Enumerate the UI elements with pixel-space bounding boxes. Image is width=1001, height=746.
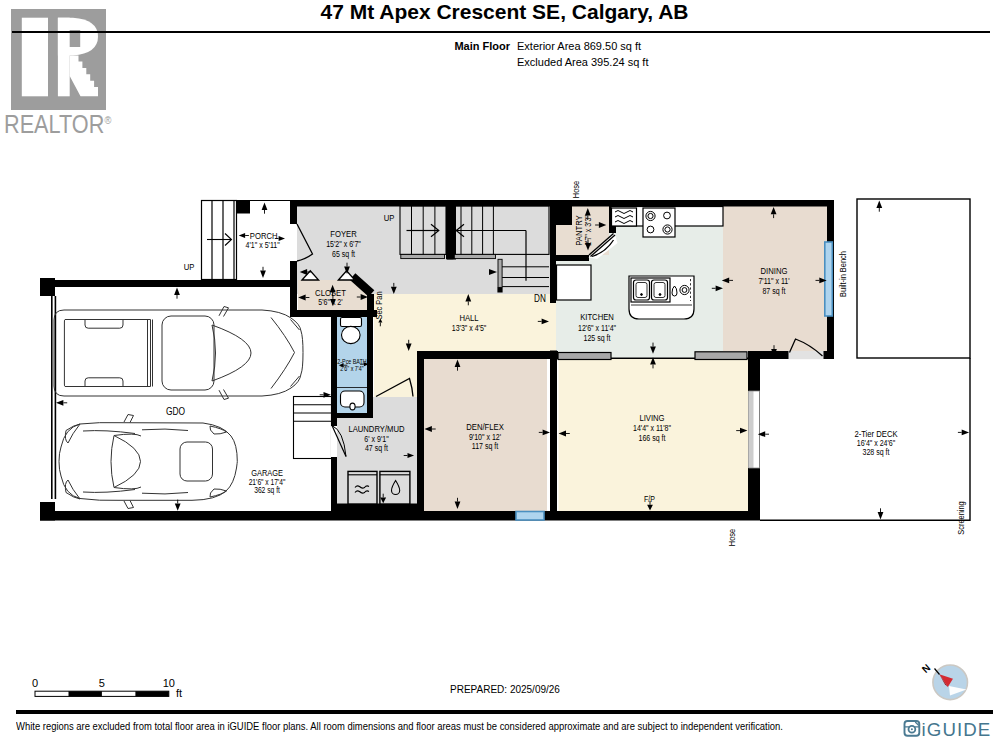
svg-text:UP: UP [184,261,195,272]
svg-text:2-Tier DECK: 2-Tier DECK [854,428,897,439]
svg-text:F/P: F/P [644,494,655,504]
svg-text:15'2" x 6'7": 15'2" x 6'7" [326,240,361,250]
svg-text:Screening: Screening [955,501,966,535]
svg-text:UP: UP [384,212,395,223]
svg-text:Sec Pan: Sec Pan [373,291,384,319]
svg-text:KITCHEN: KITCHEN [580,312,614,323]
svg-text:LIVING: LIVING [639,413,664,424]
svg-text:5: 5 [99,677,105,689]
svg-text:117 sq ft: 117 sq ft [472,441,499,451]
svg-text:0: 0 [32,677,38,689]
svg-text:10: 10 [163,677,175,689]
svg-text:LAUNDRY/MUD: LAUNDRY/MUD [348,424,404,435]
svg-text:Built-in Bench: Built-in Bench [837,251,848,297]
svg-text:Hose: Hose [570,181,581,199]
svg-text:87 sq ft: 87 sq ft [762,286,786,296]
svg-text:2'6" x 7'4": 2'6" x 7'4" [340,366,363,373]
svg-text:HALL: HALL [459,313,478,324]
svg-text:7'11" x 11': 7'11" x 11' [758,277,790,287]
svg-text:N: N [920,662,933,675]
svg-text:125 sq ft: 125 sq ft [584,333,612,343]
svg-text:362 sq ft: 362 sq ft [254,485,281,495]
svg-text:Hose: Hose [726,529,737,547]
svg-text:13'3" x 4'5": 13'3" x 4'5" [452,324,487,334]
svg-text:FOYER: FOYER [330,229,356,240]
svg-text:DINING: DINING [761,266,788,277]
svg-text:4'1" x 5'11": 4'1" x 5'11" [246,240,280,250]
svg-text:12'6" x 11'4": 12'6" x 11'4" [578,323,616,333]
svg-text:2'7" x 3'3": 2'7" x 3'3" [583,215,593,246]
svg-text:65 sq ft: 65 sq ft [332,249,356,259]
svg-text:DEN/FLEX: DEN/FLEX [466,422,504,433]
svg-text:GDO: GDO [166,405,185,417]
svg-text:DN: DN [534,293,546,304]
svg-text:2-Pce BATH: 2-Pce BATH [337,359,366,366]
svg-text:5'6" x 2': 5'6" x 2' [318,297,343,307]
svg-text:ft: ft [176,687,182,699]
svg-text:iGUIDE: iGUIDE [922,719,992,740]
svg-text:328 sq ft: 328 sq ft [863,448,891,458]
svg-text:166 sq ft: 166 sq ft [639,433,667,443]
svg-text:14'4" x 11'8": 14'4" x 11'8" [633,424,671,434]
svg-text:47 sq ft: 47 sq ft [365,443,389,453]
